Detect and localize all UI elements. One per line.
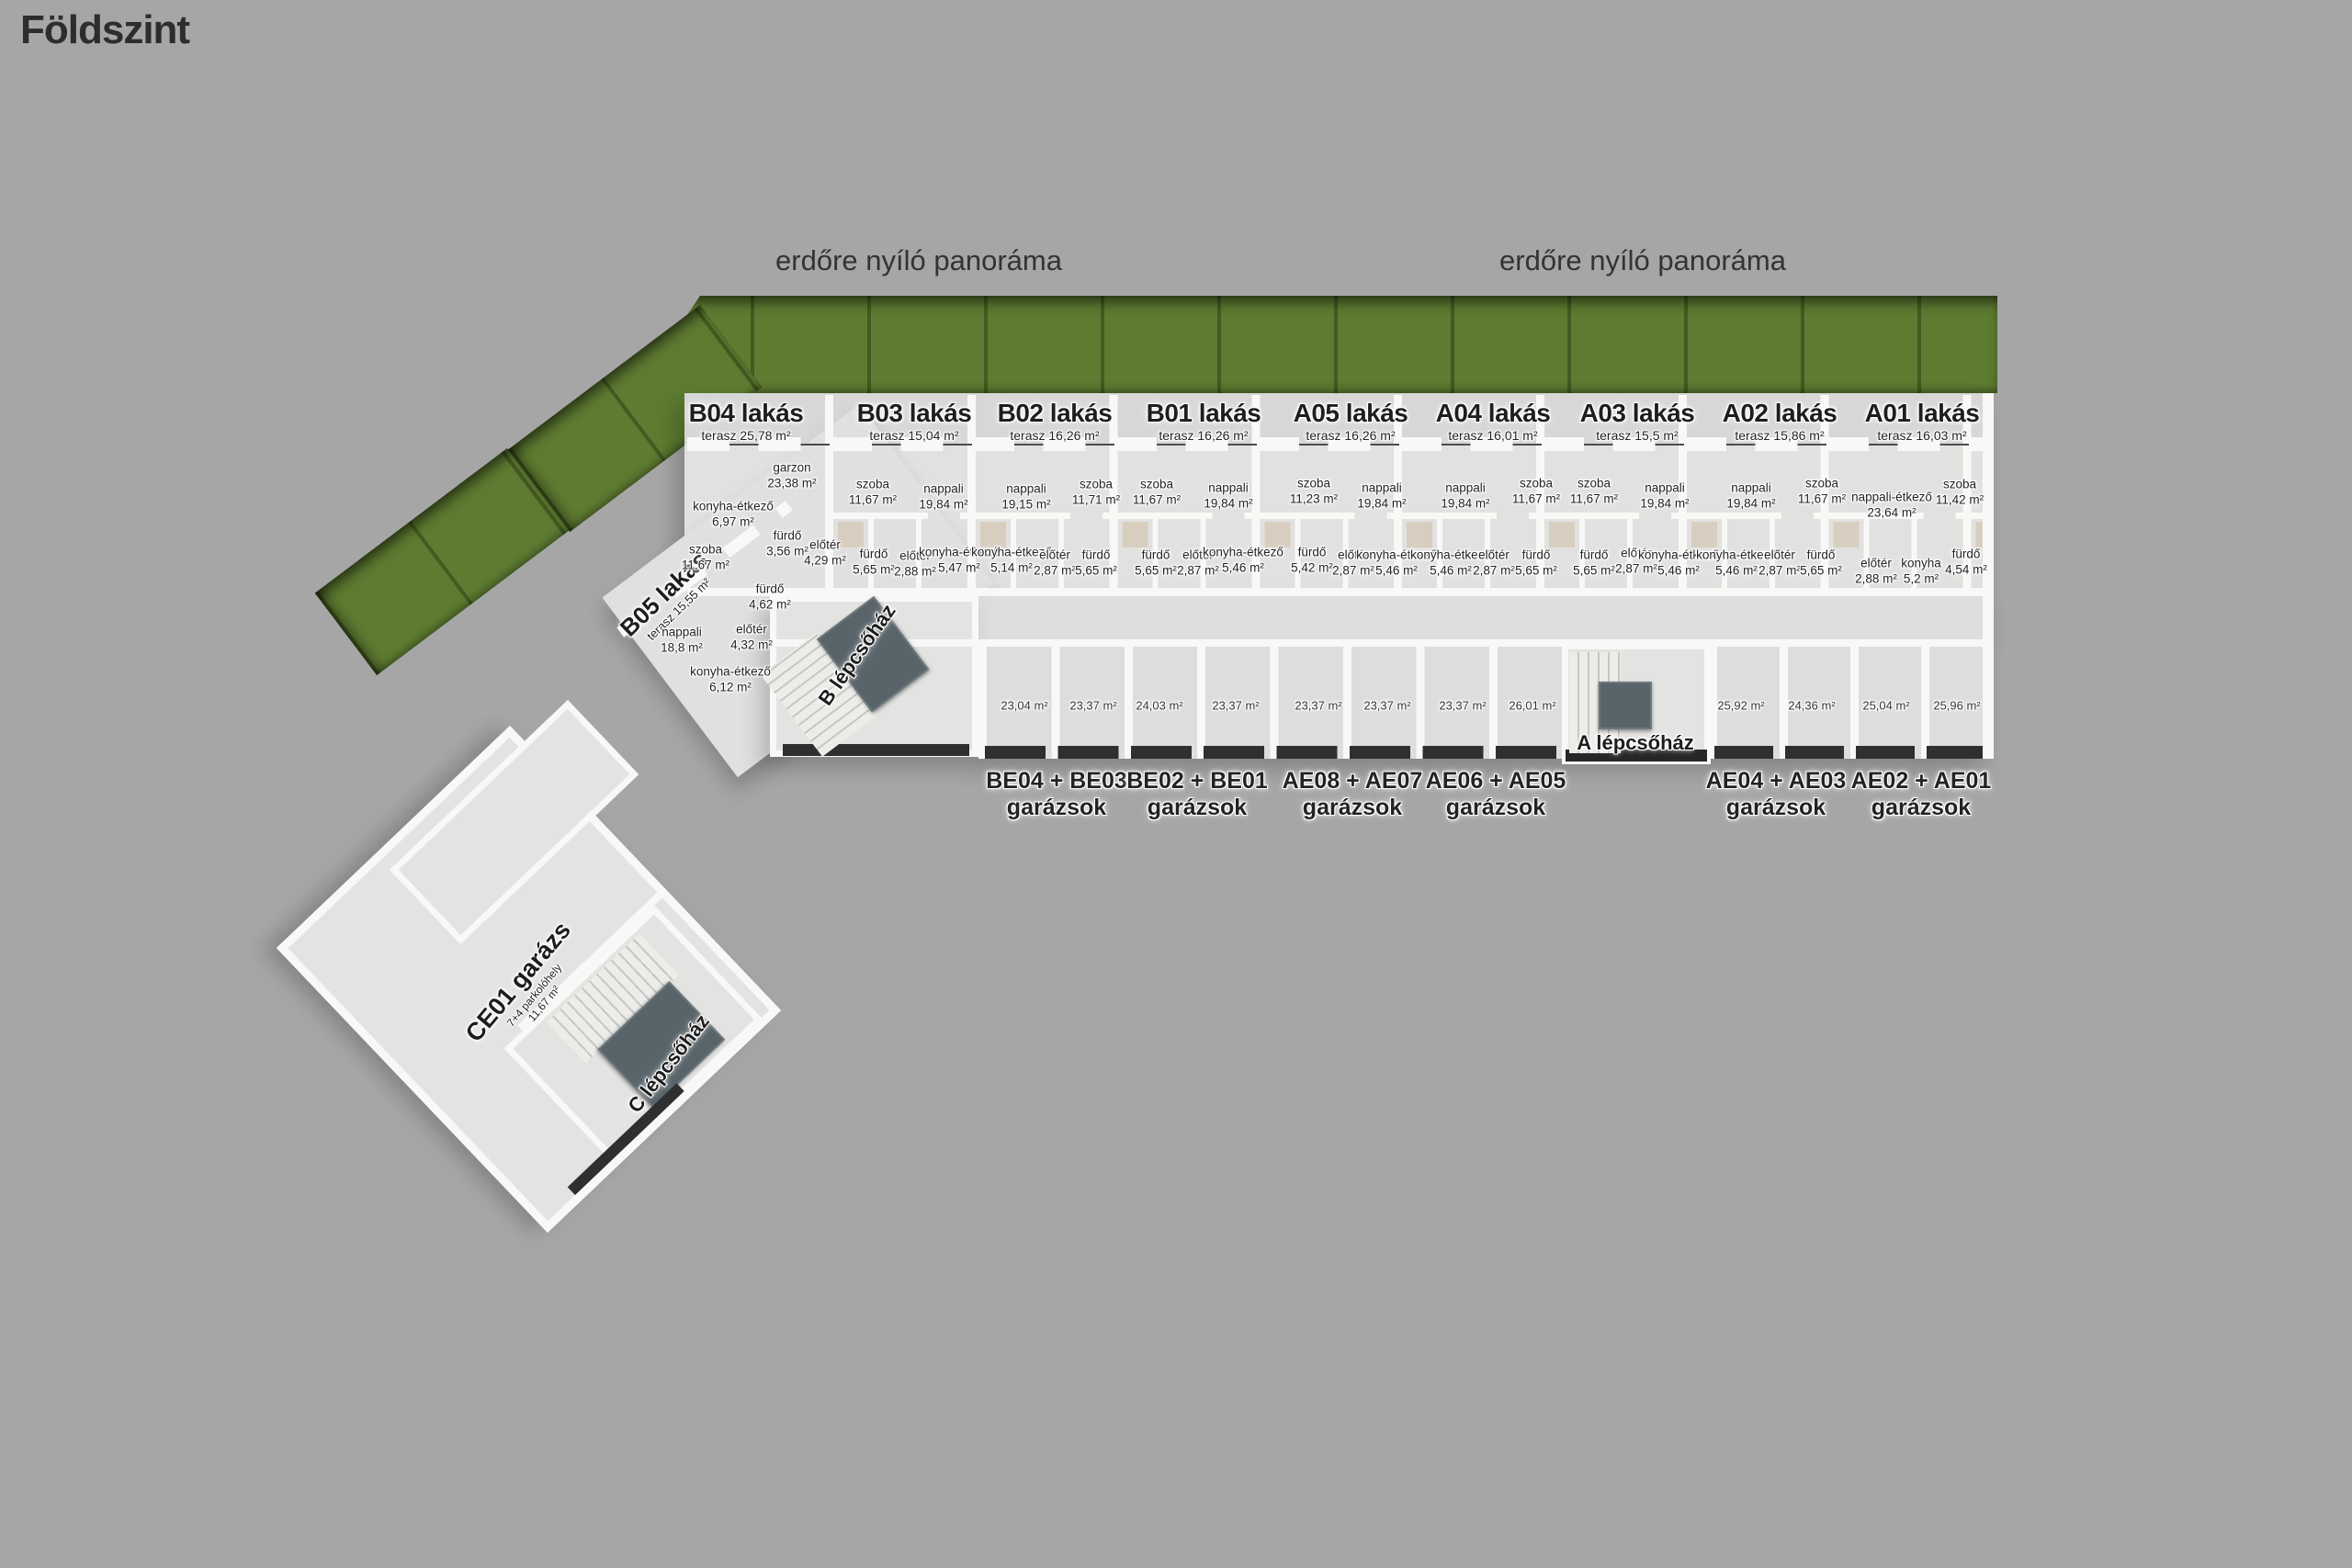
room-label: konyha-étkező6,12 m² xyxy=(675,664,786,696)
apartment-name: A05 lakás xyxy=(1294,399,1408,428)
terasz-label: terasz 16,26 m² xyxy=(1306,428,1395,443)
room-label: fürdő4,62 m² xyxy=(715,581,825,614)
terasz-label: terasz 15,86 m² xyxy=(1735,428,1824,443)
apartment-name: A03 lakás xyxy=(1580,399,1695,428)
garage-area-label: 23,04 m² xyxy=(1001,699,1047,713)
garage-area-label: 25,92 m² xyxy=(1717,699,1764,713)
terasz-label: terasz 16,26 m² xyxy=(1010,428,1099,443)
terasz-label: terasz 25,78 m² xyxy=(701,428,790,443)
apartment-name: A02 lakás xyxy=(1723,399,1837,428)
garage-area-label: 23,37 m² xyxy=(1439,699,1486,713)
stair-platform xyxy=(1599,682,1652,729)
hedge-top-band xyxy=(634,296,1997,393)
terasz-label: terasz 16,01 m² xyxy=(1448,428,1537,443)
room-label: előtér4,32 m² xyxy=(696,622,807,654)
panorama-caption-right: erdőre nyíló panoráma xyxy=(1499,244,1786,277)
garage-area-label: 26,01 m² xyxy=(1509,699,1555,713)
garage-area-label: 24,36 m² xyxy=(1788,699,1835,713)
garage-area-label: 25,96 m² xyxy=(1933,699,1980,713)
garage-area-label: 23,37 m² xyxy=(1212,699,1259,713)
staircase-b-entrance-doors xyxy=(783,744,969,756)
apartment-name: B01 lakás xyxy=(1147,399,1261,428)
garage-area-label: 23,37 m² xyxy=(1295,699,1341,713)
apartment-name: B02 lakás xyxy=(998,399,1113,428)
terasz-label: terasz 16,03 m² xyxy=(1877,428,1966,443)
panorama-caption-left: erdőre nyíló panoráma xyxy=(775,244,1062,277)
garage-area-label: 23,37 m² xyxy=(1363,699,1410,713)
terasz-label: terasz 16,26 m² xyxy=(1159,428,1248,443)
garage-group-label: AE04 + AE03garázsok xyxy=(1706,768,1847,820)
garage-group-label: AE06 + AE05garázsok xyxy=(1426,768,1566,820)
apartment-name: A01 lakás xyxy=(1865,399,1980,428)
garage-area-label: 25,04 m² xyxy=(1862,699,1909,713)
garage-group-label: BE02 + BE01garázsok xyxy=(1126,768,1268,820)
staircase-a-label: A lépcsőház xyxy=(1577,731,1694,755)
garage-group-label: BE04 + BE03garázsok xyxy=(986,768,1127,820)
page-title: Földszint xyxy=(20,7,189,53)
garage-area-label: 24,03 m² xyxy=(1136,699,1182,713)
room-label: fürdő4,54 m² xyxy=(1911,547,2021,579)
garage-area-label: 23,37 m² xyxy=(1069,699,1116,713)
apartment-name: A04 lakás xyxy=(1436,399,1551,428)
garage-doors-left xyxy=(985,746,1560,759)
garage-doors-right xyxy=(1714,746,1983,759)
room-label: konyha-étkező6,97 m² xyxy=(678,499,788,531)
apartment-name: B03 lakás xyxy=(857,399,972,428)
terasz-label: terasz 15,5 m² xyxy=(1596,428,1678,443)
apartment-name: B04 lakás xyxy=(689,399,804,428)
garage-group-label: AE08 + AE07garázsok xyxy=(1283,768,1423,820)
hedge-diagonal-2 xyxy=(315,448,570,675)
garage-group-label: AE02 + AE01garázsok xyxy=(1851,768,1992,820)
floor-plan: Földszint erdőre nyíló panoráma erdőre n… xyxy=(0,0,2352,1568)
room-label: szoba11,42 m² xyxy=(1905,477,2015,509)
terasz-label: terasz 15,04 m² xyxy=(869,428,958,443)
